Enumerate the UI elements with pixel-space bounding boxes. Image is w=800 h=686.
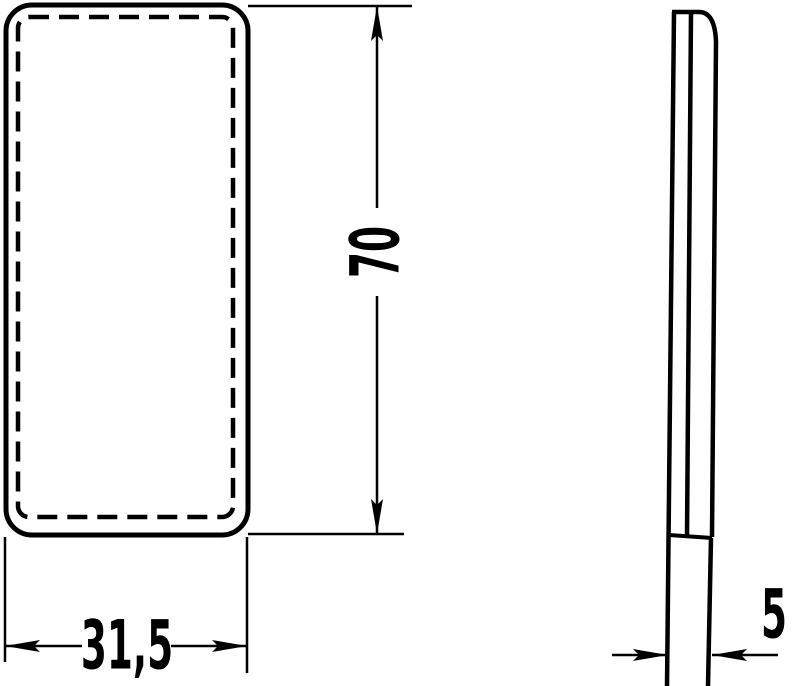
width-dimension-label: 31,5: [81, 605, 173, 684]
side-view-step-line: [669, 535, 712, 538]
side-view-lower-front-face: [708, 538, 711, 686]
height-dimension-label: 70: [335, 226, 414, 278]
side-view: [667, 12, 716, 686]
side-view-back-face: [667, 12, 674, 686]
depth-dimension-label: 5: [761, 574, 787, 653]
front-view: [6, 5, 248, 535]
front-view-outline: [6, 5, 248, 535]
front-view-dashed-inner-outline: [18, 17, 233, 517]
drawing-page: 70 31,5 5: [0, 0, 800, 686]
technical-drawing-canvas: 70 31,5 5: [0, 0, 800, 686]
side-view-lens-parting-line: [687, 12, 691, 536]
side-view-front-face: [672, 12, 716, 537]
